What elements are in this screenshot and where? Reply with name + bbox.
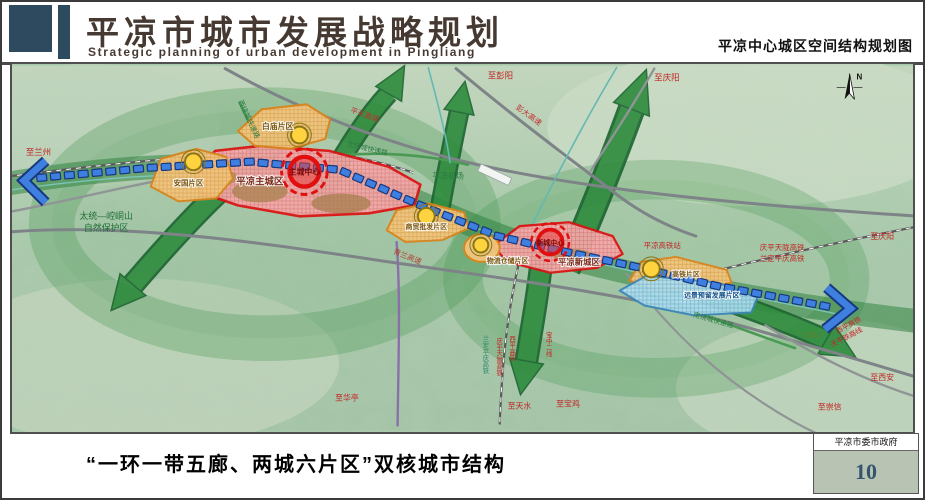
label-hsr-station: 平凉高铁站 bbox=[644, 240, 682, 250]
label-qptl-hsr: 庆平天陇高铁 bbox=[760, 242, 805, 252]
label-to-tianshui: 至天水 bbox=[508, 401, 532, 411]
slide-footer: “一环一带五廊、两城六片区”双核城市结构 平凉市委市政府 10 bbox=[2, 434, 923, 500]
planning-map: 主城中心 新城中心 N 至兰州 太统—崆峒山 自然保护区 安国片区 平凉主城区 … bbox=[12, 64, 913, 432]
node-logistics bbox=[470, 234, 492, 256]
label-zone-new-city: 平凉新城区 bbox=[558, 257, 601, 267]
compass-n-label: N bbox=[857, 72, 863, 81]
structure-caption: “一环一带五廊、两城六片区”双核城市结构 bbox=[86, 448, 506, 477]
label-zone-reserve: 远景预留发展片区 bbox=[684, 291, 739, 300]
node-anguo bbox=[181, 150, 205, 174]
node-hsr bbox=[639, 257, 663, 281]
label-zone-hsr: 高铁片区 bbox=[672, 270, 700, 279]
logo-square bbox=[9, 5, 52, 52]
slide-header: 平凉市城市发展战略规划 Strategic planning of urban … bbox=[2, 2, 923, 65]
new-core-label: 新城中心 bbox=[536, 238, 564, 247]
label-to-chongxin: 至崇信 bbox=[818, 402, 842, 412]
label-zone-main-city: 平凉主城区 bbox=[236, 176, 284, 187]
map-sheet-name: 平凉中心城区空间结构规划图 bbox=[718, 36, 913, 56]
label-zone-trade: 商贸批发片区 bbox=[406, 222, 448, 231]
main-core-label: 主城中心 bbox=[289, 167, 321, 177]
label-to-lanzhou: 至兰州 bbox=[26, 147, 51, 157]
label-to-xian: 至西安 bbox=[870, 372, 894, 382]
label-s-qptl-hsr: 庆平天陇高铁 bbox=[495, 336, 502, 377]
org-name: 平凉市委市政府 bbox=[814, 434, 918, 451]
label-zone-baimiao: 白庙片区 bbox=[262, 121, 294, 131]
map-frame: 主城中心 新城中心 N 至兰州 太统—崆峒山 自然保护区 安国片区 平凉主城区 … bbox=[10, 62, 915, 434]
label-nature-reserve-2: 自然保护区 bbox=[84, 222, 129, 233]
new-city-core: 新城中心 bbox=[531, 223, 569, 261]
label-s-ldpq-hsr: 兰定平庆高铁 bbox=[481, 334, 488, 375]
label-to-huating: 至华亭 bbox=[335, 393, 359, 403]
stamp-box: 平凉市委市政府 10 bbox=[813, 433, 919, 494]
label-zone-logistics: 物流仓储片区 bbox=[487, 256, 529, 265]
logo-bar bbox=[58, 5, 70, 59]
label-airport: 平凉机场 bbox=[432, 171, 464, 181]
label-to-qingyang-top: 至庆阳 bbox=[654, 72, 679, 82]
label-to-baoji: 至宝鸡 bbox=[556, 399, 580, 409]
label-g312: G312 bbox=[803, 330, 822, 339]
label-to-pengyang: 至彭阳 bbox=[488, 71, 513, 81]
label-nature-reserve-1: 太统—崆峒山 bbox=[79, 210, 132, 221]
page-number: 10 bbox=[814, 451, 918, 493]
label-to-qingyang-right: 至庆阳 bbox=[870, 231, 894, 241]
label-s-xiping-hsr: 西平高铁 bbox=[508, 335, 515, 362]
label-zone-anguo: 安国片区 bbox=[174, 178, 204, 188]
page-subtitle: Strategic planning of urban development … bbox=[88, 45, 476, 59]
label-ldpq-hsr: 兰定平庆高铁 bbox=[760, 253, 805, 263]
planning-slide: 平凉市城市发展战略规划 Strategic planning of urban … bbox=[0, 0, 925, 500]
label-baozhong-line2: 宝中二线 bbox=[545, 330, 552, 357]
